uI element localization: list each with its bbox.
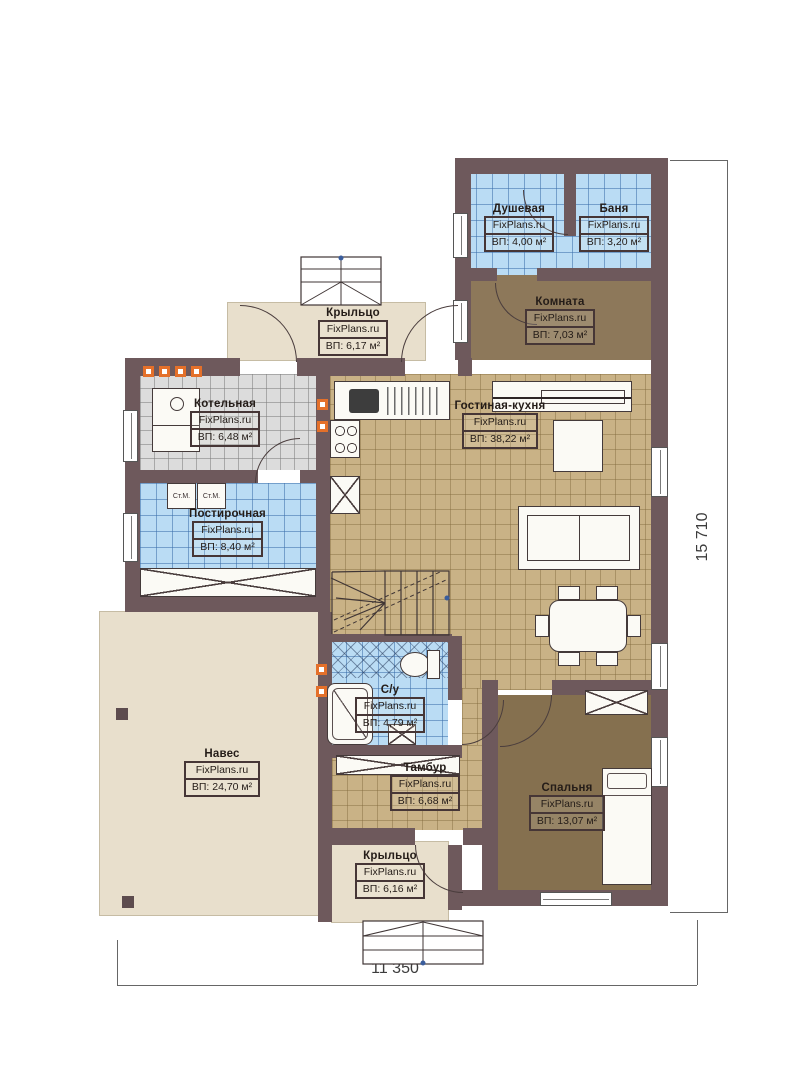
room-name: Крыльцо — [328, 850, 452, 862]
watermark: FixPlans.ru — [392, 777, 458, 794]
wall — [463, 828, 482, 845]
room-area: ВП: 4,00 м² — [486, 235, 552, 250]
extension-line — [697, 920, 698, 985]
wall — [455, 158, 668, 174]
room-name: С/у — [345, 684, 435, 696]
room-name: Баня — [578, 203, 650, 215]
extension-line — [117, 940, 118, 985]
wall — [297, 358, 405, 376]
watermark: FixPlans.ru — [464, 415, 536, 432]
room-area: ВП: 6,68 м² — [392, 794, 458, 809]
room-label-kotelnaya: Котельная FixPlans.ruВП: 6,48 м² — [160, 398, 290, 447]
window — [651, 643, 668, 690]
room-label-banya: Баня FixPlans.ruВП: 3,20 м² — [578, 203, 650, 252]
laundry-bench — [140, 568, 316, 597]
room-name: Постирочная — [160, 508, 295, 520]
room-name: Тамбур — [365, 762, 485, 774]
wardrobe — [585, 690, 648, 715]
room-area: ВП: 7,03 м² — [527, 328, 593, 343]
watermark: FixPlans.ru — [581, 218, 647, 235]
watermark: FixPlans.ru — [194, 523, 260, 540]
window — [123, 410, 138, 462]
watermark: FixPlans.ru — [320, 322, 386, 339]
vent-icon — [317, 421, 328, 432]
extension-line — [670, 912, 727, 913]
room-name: Душевая — [458, 203, 580, 215]
watermark: FixPlans.ru — [357, 699, 423, 716]
chair — [596, 652, 618, 666]
dimension-height: 15 710 — [694, 502, 712, 572]
stairs-porch-top — [300, 256, 382, 306]
canopy-post — [122, 896, 134, 908]
wall — [300, 470, 316, 483]
hob — [330, 420, 360, 458]
vent-icon — [175, 366, 186, 377]
stairs-main — [330, 570, 450, 636]
floor-plan: Ст.М. Ст.М. — [0, 0, 792, 1080]
room-area: ВП: 38,22 м² — [464, 432, 536, 447]
watermark: FixPlans.ru — [531, 797, 603, 814]
sofa — [518, 506, 640, 570]
washing-machine: Ст.М. — [167, 483, 196, 509]
window — [651, 737, 668, 787]
vent-icon — [316, 686, 327, 697]
watermark: FixPlans.ru — [192, 413, 258, 430]
dimension-line-right — [727, 160, 728, 913]
room-area: ВП: 24,70 м² — [186, 780, 258, 795]
sofa-cushion-divider — [579, 515, 580, 561]
window — [651, 447, 668, 497]
chair — [627, 615, 641, 637]
vent-icon — [191, 366, 202, 377]
wall — [651, 158, 668, 378]
chair — [596, 586, 618, 600]
room-name: Навес — [158, 748, 286, 760]
washer-label: Ст.М. — [173, 493, 190, 500]
toilet-tank — [427, 650, 440, 679]
toilet-bowl — [400, 652, 430, 677]
washer-label: Ст.М. — [203, 493, 220, 500]
kitchen-sink — [349, 389, 379, 413]
room-label-postirochnaya: Постирочная FixPlans.ruВП: 8,40 м² — [160, 508, 295, 557]
wall — [537, 268, 651, 281]
room-area: ВП: 8,40 м² — [194, 540, 260, 555]
room-label-spalnya: Спальня FixPlans.ruВП: 13,07 м² — [508, 782, 626, 831]
wall — [318, 828, 415, 845]
room-label-kryltso-top: Крыльцо FixPlans.ruВП: 6,17 м² — [288, 307, 418, 356]
washing-machine: Ст.М. — [197, 483, 226, 509]
room-name: Гостиная-кухня — [425, 400, 575, 412]
kitchen-cabinet — [330, 476, 360, 514]
extension-line — [670, 160, 727, 161]
room-area: ВП: 6,48 м² — [192, 430, 258, 445]
room-label-kryltso-bottom: Крыльцо FixPlans.ruВП: 6,16 м² — [328, 850, 452, 899]
room-name: Котельная — [160, 398, 290, 410]
room-label-naves: Навес FixPlans.ruВП: 24,70 м² — [158, 748, 286, 797]
wall — [125, 595, 330, 612]
wall — [140, 470, 258, 483]
room-name: Спальня — [508, 782, 626, 794]
room-label-su: С/у FixPlans.ruВП: 4,79 м² — [345, 684, 435, 733]
wall — [316, 358, 330, 612]
room-area: ВП: 13,07 м² — [531, 814, 603, 829]
vent-icon — [159, 366, 170, 377]
vent-icon — [317, 399, 328, 410]
wall — [448, 636, 462, 700]
room-area: ВП: 6,17 м² — [320, 339, 386, 354]
wall — [125, 358, 140, 612]
dining-table — [549, 600, 627, 652]
dimension-line-bottom — [117, 985, 697, 986]
chair — [558, 586, 580, 600]
chair — [535, 615, 549, 637]
watermark: FixPlans.ru — [486, 218, 552, 235]
room-label-komnata: Комната FixPlans.ruВП: 7,03 м² — [505, 296, 615, 345]
wall — [460, 268, 497, 281]
room-area: ВП: 4,79 м² — [357, 716, 423, 731]
room-label-tambur: Тамбур FixPlans.ruВП: 6,68 м² — [365, 762, 485, 811]
room-name: Крыльцо — [288, 307, 418, 319]
watermark: FixPlans.ru — [527, 311, 593, 328]
vent-icon — [143, 366, 154, 377]
room-name: Комната — [505, 296, 615, 308]
watermark: FixPlans.ru — [186, 763, 258, 780]
stairs-porch-bottom — [362, 920, 484, 965]
window — [540, 892, 612, 906]
watermark: FixPlans.ru — [357, 865, 423, 882]
window — [123, 513, 138, 562]
room-area: ВП: 6,16 м² — [357, 882, 423, 897]
wall — [458, 358, 472, 376]
room-area: ВП: 3,20 м² — [581, 235, 647, 250]
vent-icon — [316, 664, 327, 675]
room-label-gostinaya: Гостиная-кухня FixPlans.ruВП: 38,22 м² — [425, 400, 575, 449]
chair — [558, 652, 580, 666]
canopy-post — [116, 708, 128, 720]
room-label-dushevaya: Душевая FixPlans.ruВП: 4,00 м² — [458, 203, 580, 252]
tv-line — [493, 397, 631, 399]
